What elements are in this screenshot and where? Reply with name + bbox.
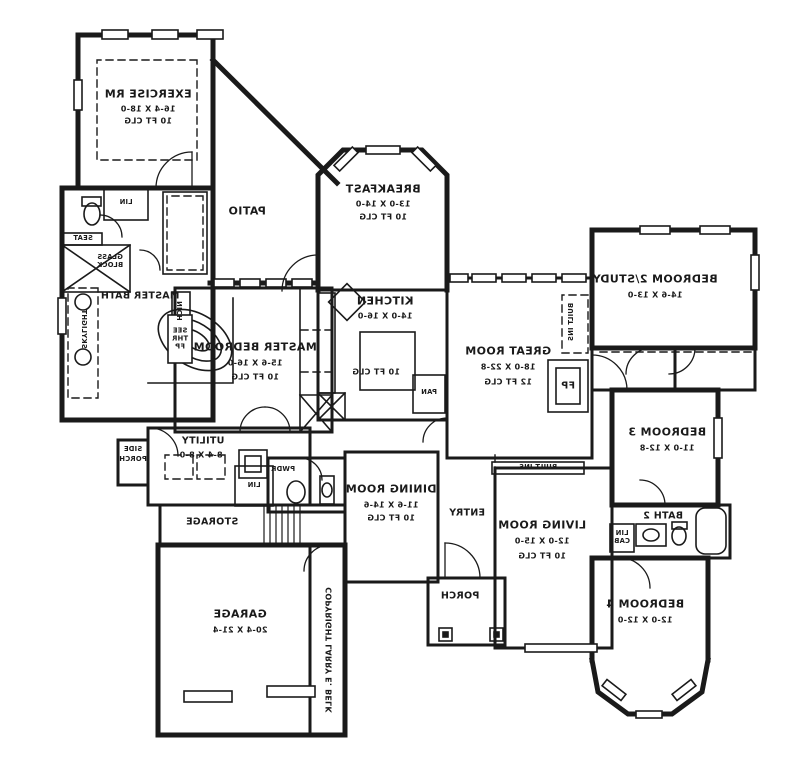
room-label-bedroom2: BEDROOM 2/STUDY bbox=[592, 274, 717, 287]
room-label-storage: STORAGE bbox=[186, 518, 238, 529]
room-clg-exercise: 10 FT CLG bbox=[124, 116, 172, 125]
room-clg-dining: 10 FT CLG bbox=[367, 513, 415, 522]
room-dims-utility: 8-4 X 8-0 bbox=[179, 450, 222, 459]
room-label-master-bedroom: MASTER BEDROOM bbox=[193, 342, 316, 355]
room-label-breakfast: BREAKFAST bbox=[345, 184, 420, 197]
room-dims-garage: 20-4 X 21-4 bbox=[212, 625, 267, 634]
room-dims-breakfast: 13-0 X 14-0 bbox=[355, 199, 410, 208]
room-label-bedroom3: BEDROOM 3 bbox=[628, 427, 706, 440]
room-label-exercise: EXERCISE RM bbox=[104, 89, 191, 102]
callout-built-ins-living: BUILT INS bbox=[519, 464, 557, 472]
room-dims-bedroom2: 14-6 X 13-0 bbox=[627, 290, 682, 299]
room-dims-bedroom3: 11-0 X 12-8 bbox=[639, 443, 694, 452]
callout-lin-hall: LIN bbox=[247, 482, 260, 490]
room-dims-exercise: 16-4 X 18-0 bbox=[120, 104, 175, 113]
callout-lin-cab: LIN CAB bbox=[611, 530, 633, 546]
callout-skylight: SKYLIGHT bbox=[79, 309, 87, 348]
callout-pan: PAN bbox=[421, 389, 437, 397]
floorplan-linework bbox=[0, 0, 800, 781]
callout-built-ins-great-room: BUILT INS bbox=[568, 303, 576, 341]
room-dims-great-room: 18-0 X 22-8 bbox=[480, 362, 535, 371]
floor-plan-mirrored: EXERCISE RM 16-4 X 18-0 10 FT CLG PATIO … bbox=[0, 0, 800, 781]
callout-seat: SEAT bbox=[73, 235, 93, 243]
room-label-living: LIVING ROOM bbox=[498, 520, 586, 533]
room-clg-master-bedroom: 10 FT CLG bbox=[231, 372, 279, 381]
room-label-side-porch-1: SIDE bbox=[124, 446, 143, 454]
callout-glass-block: GLASS BLOCK bbox=[93, 254, 127, 270]
room-label-great-room: GREAT ROOM bbox=[465, 346, 551, 359]
room-dims-bedroom4: 12-0 X 12-0 bbox=[617, 615, 672, 624]
room-dims-kitchen: 14-0 X 16-0 bbox=[357, 311, 412, 320]
room-label-utility: UTILITY bbox=[182, 437, 225, 448]
room-label-master-bath: MASTER BATH bbox=[101, 292, 180, 303]
room-label-patio: PATIO bbox=[228, 206, 266, 219]
room-clg-kitchen: 10 FT CLG bbox=[352, 367, 400, 376]
callout-lin-master: LIN bbox=[119, 199, 132, 207]
room-label-bedroom4: BEDROOM 4 bbox=[606, 599, 684, 612]
room-clg-great-room: 12 FT CLG bbox=[484, 377, 532, 386]
room-label-bath2: BATH 2 bbox=[643, 512, 683, 523]
room-clg-breakfast: 10 FT CLG bbox=[359, 212, 407, 221]
room-clg-living: 10 FT CLG bbox=[518, 551, 566, 560]
room-dims-master-bedroom: 15-6 X 16-0 bbox=[227, 358, 282, 367]
room-label-kitchen: KITCHEN bbox=[357, 296, 414, 309]
floor-plan-canvas: EXERCISE RM 16-4 X 18-0 10 FT CLG PATIO … bbox=[0, 0, 800, 781]
callout-nich: NICH bbox=[177, 301, 185, 321]
room-dims-living: 12-0 X 15-0 bbox=[514, 536, 569, 545]
room-label-porch: PORCH bbox=[441, 592, 480, 603]
room-label-garage: GARAGE bbox=[213, 609, 266, 622]
room-dims-dining: 11-6 X 14-6 bbox=[363, 500, 418, 509]
copyright-credit: COPYRIGHT LARRY E. BELK bbox=[324, 587, 333, 712]
room-label-dining: DINING ROOM bbox=[345, 484, 436, 497]
callout-fp: FP bbox=[561, 382, 575, 393]
callout-see-thr-fp: SEE THR FP bbox=[169, 327, 191, 350]
callout-pwdr: PWDR bbox=[271, 466, 295, 474]
room-label-side-porch-2: PORCH bbox=[119, 456, 147, 464]
room-label-entry: ENTRY bbox=[449, 509, 485, 520]
